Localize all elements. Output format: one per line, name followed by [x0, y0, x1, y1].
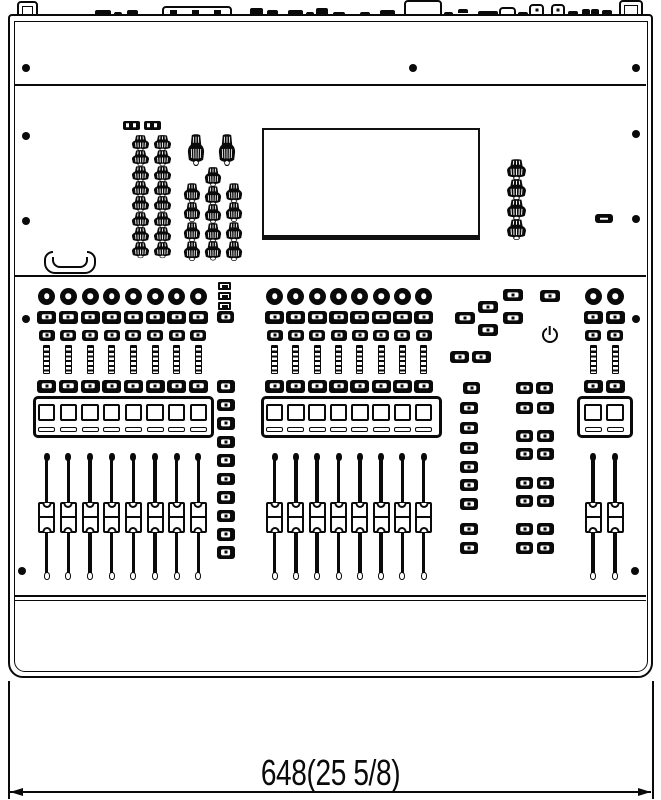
- led-indicator-block: [123, 121, 140, 130]
- screw-icon: [22, 132, 30, 140]
- fader-center-line: [394, 516, 411, 518]
- rear-connector-box: [551, 4, 565, 16]
- view-button: [217, 473, 235, 486]
- channel-led-bar: [82, 427, 99, 433]
- fader-slot-end: [357, 572, 363, 580]
- assign-button: [537, 523, 554, 535]
- fader-notch: [419, 527, 428, 532]
- channel-encoder: [309, 288, 326, 305]
- led-dot: [126, 123, 129, 127]
- gain-knob-icon: [187, 134, 205, 166]
- fader-notch: [355, 527, 364, 532]
- status-led: [218, 302, 231, 310]
- fader-notch: [129, 527, 138, 532]
- mute-button: [81, 380, 100, 393]
- select-button: [606, 311, 625, 324]
- navigation-button: [478, 324, 498, 337]
- fader-notch: [611, 527, 620, 532]
- solo-button: [39, 330, 55, 342]
- assign-button: [537, 495, 554, 507]
- bracket-inner-line: [624, 5, 638, 14]
- fader-notch: [398, 503, 407, 508]
- processing-knob-icon: [183, 222, 201, 242]
- view-button: [217, 380, 235, 393]
- rear-connector-box: [529, 4, 544, 16]
- mute-button: [265, 380, 284, 393]
- solo-button: [60, 330, 76, 342]
- rear-connector-bump: [267, 10, 278, 16]
- scribble-display: [584, 404, 602, 422]
- processing-knob-icon: [183, 241, 201, 261]
- bracket-inner-line: [22, 6, 33, 14]
- screw-icon: [409, 64, 417, 72]
- fader-center-line: [415, 516, 432, 518]
- channel-led-bar: [190, 427, 207, 433]
- power-stem: [548, 326, 551, 335]
- handle-recess: [44, 251, 96, 274]
- channel-encoder: [607, 288, 624, 305]
- mute-button: [189, 380, 208, 393]
- select-button: [59, 311, 78, 324]
- assign-button: [460, 542, 478, 554]
- fader-notch: [107, 503, 116, 508]
- rear-connector-strip: [162, 6, 232, 16]
- fader-slot-end: [44, 572, 50, 580]
- rear-connector-bump: [316, 8, 328, 16]
- mute-button: [350, 380, 369, 393]
- select-button: [189, 311, 208, 324]
- power-icon: [542, 327, 559, 344]
- select-button: [265, 311, 284, 324]
- scribble-display: [103, 404, 121, 422]
- fader-slot-end: [272, 453, 278, 461]
- fader-notch: [151, 503, 160, 508]
- view-button: [217, 454, 235, 467]
- scribble-display: [351, 404, 369, 422]
- solo-button: [288, 330, 304, 342]
- assign-button: [460, 523, 478, 535]
- mute-button: [167, 380, 186, 393]
- fader-cap: [287, 502, 304, 533]
- mute-button: [146, 380, 165, 393]
- rear-connector-bump: [95, 10, 111, 16]
- monitor-knob-icon: [506, 199, 527, 220]
- rear-connector-bump: [602, 10, 612, 16]
- solo-button: [169, 330, 185, 342]
- fader-cap: [394, 502, 411, 533]
- processing-knob-icon: [225, 222, 243, 242]
- assign-button: [516, 542, 533, 554]
- mute-button: [393, 380, 412, 393]
- fader-notch: [313, 527, 322, 532]
- fader-notch: [64, 527, 73, 532]
- channel-encoder: [168, 288, 185, 305]
- encoder-knob-icon: [131, 242, 150, 258]
- fader-slot-end: [152, 572, 158, 580]
- channel-encoder: [60, 288, 77, 305]
- assign-button: [516, 402, 533, 414]
- fader-slot-end: [336, 453, 342, 461]
- rear-connector-bump: [444, 12, 453, 16]
- channel-led-bar: [330, 427, 347, 433]
- solo-button: [190, 330, 206, 342]
- view-button: [217, 311, 234, 324]
- channel-led-bar: [373, 427, 390, 433]
- scribble-display: [38, 404, 56, 422]
- level-meter: [87, 345, 94, 375]
- dimension-label: 648(25 5/8): [73, 752, 589, 794]
- channel-encoder: [415, 288, 432, 305]
- solo-button: [267, 330, 283, 342]
- utility-button: [516, 382, 533, 394]
- assign-button: [460, 402, 478, 414]
- screw-icon: [632, 130, 640, 138]
- assign-button: [516, 448, 533, 460]
- rear-connector-bump: [458, 9, 468, 13]
- monitor-knob-icon: [506, 219, 527, 240]
- utility-button: [463, 382, 480, 394]
- mute-button: [308, 380, 327, 393]
- channel-encoder: [103, 288, 120, 305]
- channel-encoder: [82, 288, 99, 305]
- channel-led-bar: [266, 427, 283, 433]
- fader-center-line: [38, 516, 55, 518]
- solo-button: [147, 330, 163, 342]
- fader-slot-end: [336, 572, 342, 580]
- fader-slot-end: [272, 572, 278, 580]
- fader-cap: [147, 502, 164, 533]
- fader-slot-end: [378, 453, 384, 461]
- fader-slot-end: [590, 572, 596, 580]
- navigation-button: [455, 312, 475, 325]
- level-meter: [108, 345, 115, 375]
- screw-icon: [22, 217, 30, 225]
- console-body: [0, 0, 661, 800]
- scribble-display: [190, 404, 208, 422]
- view-button: [217, 417, 235, 430]
- panel-divider: [15, 275, 646, 277]
- assign-button: [537, 402, 554, 414]
- channel-encoder: [585, 288, 602, 305]
- solo-button: [416, 330, 432, 342]
- level-meter: [420, 345, 427, 375]
- fader-cap: [60, 502, 77, 533]
- rear-connector-bump: [478, 11, 498, 16]
- processing-knob-icon: [225, 183, 243, 203]
- encoder-knob-icon: [153, 166, 172, 182]
- connector-pin-dot: [557, 9, 560, 12]
- mute-button: [59, 380, 78, 393]
- view-button: [217, 491, 235, 504]
- channel-led-bar: [287, 427, 304, 433]
- usb-port: [595, 214, 613, 223]
- encoder-knob-icon: [131, 135, 150, 151]
- channel-led-bar: [351, 427, 368, 433]
- fader-cap: [607, 502, 624, 533]
- fader-notch: [377, 527, 386, 532]
- channel-led-bar: [125, 427, 142, 433]
- fader-notch: [64, 503, 73, 508]
- select-button: [414, 311, 433, 324]
- rear-connector-box: [499, 7, 516, 16]
- navigation-button: [503, 312, 523, 325]
- solo-button: [331, 330, 347, 342]
- mute-button: [124, 380, 143, 393]
- fader-notch: [129, 503, 138, 508]
- solo-button: [82, 330, 98, 342]
- solo-button: [352, 330, 368, 342]
- fader-notch: [270, 527, 279, 532]
- scribble-display: [415, 404, 433, 422]
- level-meter: [152, 345, 159, 375]
- rear-connector-bump: [306, 12, 314, 16]
- rear-connector-bump: [360, 12, 370, 16]
- fader-center-line: [125, 516, 142, 518]
- mute-button: [606, 380, 625, 393]
- fader-slot-end: [421, 453, 427, 461]
- encoder-knob-icon: [131, 166, 150, 182]
- level-meter: [130, 345, 137, 375]
- encoder-knob-icon: [153, 135, 172, 151]
- scribble-display: [287, 404, 305, 422]
- channel-encoder: [287, 288, 304, 305]
- assign-button: [516, 430, 533, 442]
- assign-button: [516, 477, 533, 489]
- encoder-knob-icon: [131, 227, 150, 243]
- channel-led-bar: [585, 427, 602, 433]
- assign-button: [516, 523, 533, 535]
- rear-connector-bump: [250, 8, 263, 16]
- screw-icon: [632, 215, 640, 223]
- solo-button: [373, 330, 389, 342]
- assign-button: [460, 479, 478, 491]
- processing-knob-icon: [204, 167, 222, 187]
- navigation-button: [478, 301, 498, 314]
- fader-notch: [172, 527, 181, 532]
- dimension-arrow-right-icon: [638, 788, 651, 796]
- scribble-display: [146, 404, 164, 422]
- fader-notch: [377, 503, 386, 508]
- fader-center-line: [60, 516, 77, 518]
- solo-button: [607, 330, 623, 342]
- fader-slot-end: [109, 572, 115, 580]
- panel-divider: [15, 600, 646, 601]
- encoder-knob-icon: [131, 150, 150, 166]
- rear-panel-box: [404, 0, 442, 16]
- fader-notch: [355, 503, 364, 508]
- processing-knob-icon: [225, 202, 243, 222]
- scribble-display: [394, 404, 412, 422]
- encoder-knob-icon: [131, 212, 150, 228]
- drawing-sheet: 648(25 5/8): [0, 0, 661, 800]
- fader-notch: [86, 503, 95, 508]
- dimension-extension-line: [652, 681, 654, 799]
- level-meter: [378, 345, 385, 375]
- fader-center-line: [287, 516, 304, 518]
- utility-button: [540, 290, 560, 303]
- fader-slot-end: [174, 572, 180, 580]
- select-button: [37, 311, 56, 324]
- solo-button: [104, 330, 120, 342]
- fader-cap: [330, 502, 347, 533]
- level-meter: [612, 345, 619, 375]
- select-button: [146, 311, 165, 324]
- fader-notch: [86, 527, 95, 532]
- solo-button: [394, 330, 410, 342]
- monitor-knob-icon: [506, 159, 527, 180]
- mute-button: [329, 380, 348, 393]
- led-dot: [154, 123, 157, 127]
- view-button: [217, 510, 235, 523]
- fader-slot-end: [314, 572, 320, 580]
- view-button: [217, 399, 235, 412]
- dimension-extension-line: [8, 681, 10, 799]
- rear-connector-bump: [591, 9, 599, 16]
- processing-knob-icon: [183, 183, 201, 203]
- fader-slot-end: [590, 453, 596, 461]
- level-meter: [43, 345, 50, 375]
- fader-notch: [151, 527, 160, 532]
- fader-notch: [107, 527, 116, 532]
- screw-icon: [22, 64, 30, 72]
- assign-button: [537, 430, 554, 442]
- fader-center-line: [607, 516, 624, 518]
- level-meter: [195, 345, 202, 375]
- channel-led-bar: [394, 427, 411, 433]
- channel-encoder: [38, 288, 55, 305]
- rear-handle-bracket: [17, 1, 38, 16]
- screw-icon: [632, 64, 640, 72]
- level-meter: [356, 345, 363, 375]
- fader-center-line: [147, 516, 164, 518]
- channel-led-bar: [38, 427, 55, 433]
- status-led: [218, 282, 231, 290]
- fader-cap: [168, 502, 185, 533]
- processing-knob-icon: [204, 223, 222, 243]
- screw-icon: [18, 567, 26, 575]
- select-button: [167, 311, 186, 324]
- solo-button: [585, 330, 601, 342]
- scribble-display: [266, 404, 284, 422]
- panel-divider: [15, 84, 646, 86]
- channel-led-bar: [607, 427, 624, 433]
- select-button: [584, 311, 603, 324]
- encoder-knob-icon: [153, 227, 172, 243]
- navigation-button: [503, 289, 523, 302]
- fader-center-line: [351, 516, 368, 518]
- scribble-display: [308, 404, 326, 422]
- mute-button: [286, 380, 305, 393]
- solo-button: [125, 330, 141, 342]
- utility-button: [450, 351, 469, 364]
- fader-notch: [42, 503, 51, 508]
- screw-icon: [631, 567, 639, 575]
- fader-cap: [38, 502, 55, 533]
- fader-center-line: [330, 516, 347, 518]
- fader-center-line: [168, 516, 185, 518]
- scribble-display: [168, 404, 186, 422]
- fader-notch: [334, 527, 343, 532]
- screw-icon: [22, 315, 30, 323]
- select-button: [81, 311, 100, 324]
- mute-button: [414, 380, 433, 393]
- monitor-knob-icon: [506, 179, 527, 200]
- channel-encoder: [266, 288, 283, 305]
- assign-button: [460, 422, 478, 434]
- fader-notch: [270, 503, 279, 508]
- mute-button: [102, 380, 121, 393]
- encoder-knob-icon: [153, 196, 172, 212]
- rear-connector-bump: [582, 9, 590, 16]
- fader-slot-end: [87, 572, 93, 580]
- rear-connector-bump: [288, 10, 303, 16]
- fader-slot-end: [293, 572, 299, 580]
- fader-slot-end: [612, 453, 618, 461]
- fader-cap: [82, 502, 99, 533]
- fader-notch: [42, 527, 51, 532]
- fader-slot-end: [87, 453, 93, 461]
- select-button: [350, 311, 369, 324]
- view-button: [217, 528, 235, 541]
- fader-notch: [589, 503, 598, 508]
- fader-notch: [589, 527, 598, 532]
- fader-notch: [334, 503, 343, 508]
- fader-center-line: [373, 516, 390, 518]
- rear-connector-bump: [518, 12, 528, 16]
- main-display: [262, 128, 480, 240]
- dimension-arrow-left-icon: [10, 788, 23, 796]
- channel-encoder: [351, 288, 368, 305]
- fader-cap: [125, 502, 142, 533]
- encoder-knob-icon: [153, 150, 172, 166]
- assign-button: [516, 495, 533, 507]
- rear-connector-bump: [127, 10, 138, 16]
- fader-notch: [194, 527, 203, 532]
- channel-encoder: [190, 288, 207, 305]
- fader-slot-end: [152, 453, 158, 461]
- processing-knob-icon: [183, 202, 201, 222]
- connector-mark: [192, 10, 199, 14]
- fader-notch: [611, 503, 620, 508]
- fader-center-line: [585, 516, 602, 518]
- level-meter: [399, 345, 406, 375]
- fader-notch: [419, 503, 428, 508]
- assign-button: [537, 542, 554, 554]
- fader-slot-end: [421, 572, 427, 580]
- assign-button: [537, 448, 554, 460]
- encoder-knob-icon: [131, 181, 150, 197]
- fader-cap: [309, 502, 326, 533]
- scribble-display: [330, 404, 348, 422]
- connector-pin-dot: [535, 9, 538, 12]
- fader-notch: [194, 503, 203, 508]
- channel-encoder: [394, 288, 411, 305]
- view-button: [217, 436, 235, 449]
- mute-button: [372, 380, 391, 393]
- mute-button: [37, 380, 56, 393]
- encoder-knob-icon: [153, 181, 172, 197]
- fader-cap: [103, 502, 120, 533]
- processing-knob-icon: [204, 204, 222, 224]
- status-led: [218, 292, 231, 300]
- level-meter: [65, 345, 72, 375]
- channel-led-bar: [309, 427, 326, 433]
- fader-cap: [373, 502, 390, 533]
- fader-center-line: [82, 516, 99, 518]
- encoder-knob-icon: [153, 242, 172, 258]
- fader-slot-end: [174, 453, 180, 461]
- led-indicator-block: [144, 121, 161, 130]
